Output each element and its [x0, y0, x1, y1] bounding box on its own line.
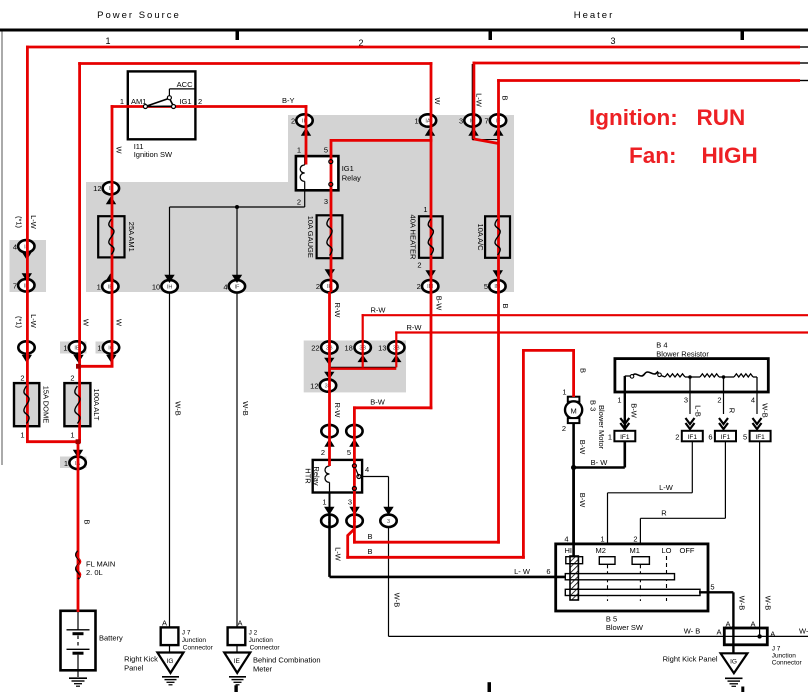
svg-text:Behind Combination: Behind Combination — [253, 656, 321, 665]
svg-text:HI: HI — [565, 546, 573, 555]
svg-text:25A AM1: 25A AM1 — [127, 222, 136, 252]
svg-text:B-W: B-W — [435, 296, 444, 312]
svg-text:B- W: B- W — [591, 458, 609, 467]
svg-text:1: 1 — [322, 498, 326, 507]
svg-text:L-W: L-W — [659, 483, 674, 492]
svg-text:Relay: Relay — [342, 174, 361, 183]
svg-text:W-B: W-B — [393, 593, 402, 607]
svg-text:Battery: Battery — [99, 634, 123, 643]
svg-text:5: 5 — [743, 432, 747, 441]
svg-text:2: 2 — [198, 97, 202, 106]
svg-text:40A HEATER: 40A HEATER — [409, 215, 418, 260]
svg-text:4: 4 — [223, 282, 227, 291]
svg-text:Connector: Connector — [183, 645, 214, 652]
svg-text:Ignition: RUN: Ignition: RUN — [589, 105, 745, 130]
svg-text:R: R — [661, 508, 667, 517]
svg-text:B-W: B-W — [370, 398, 386, 407]
svg-text:1: 1 — [617, 396, 621, 405]
svg-text:L-W: L-W — [334, 547, 343, 562]
svg-text:B: B — [367, 547, 372, 556]
svg-text:1: 1 — [608, 432, 612, 441]
svg-text:B-W: B-W — [578, 440, 587, 456]
svg-text:B: B — [501, 95, 510, 100]
svg-text:Blower SW: Blower SW — [606, 623, 644, 632]
svg-text:Ignition SW: Ignition SW — [134, 150, 173, 159]
svg-text:2: 2 — [675, 432, 679, 441]
svg-text:L- W: L- W — [514, 567, 531, 576]
svg-text:IG1: IG1 — [342, 164, 354, 173]
svg-text:A: A — [162, 619, 167, 628]
svg-text:W-B: W-B — [241, 401, 250, 415]
svg-text:Meter: Meter — [253, 665, 273, 674]
svg-text:L-W: L-W — [29, 314, 38, 329]
svg-text:10A A/C: 10A A/C — [476, 223, 485, 251]
svg-text:IG1: IG1 — [179, 97, 191, 106]
svg-text:Relay: Relay — [312, 466, 321, 485]
svg-text:2: 2 — [70, 374, 74, 383]
svg-text:B: B — [83, 519, 92, 524]
svg-text:IF: IF — [234, 284, 240, 290]
svg-text:10A GAUGE: 10A GAUGE — [306, 216, 315, 258]
svg-text:2: 2 — [717, 396, 721, 405]
svg-text:IG: IG — [730, 659, 737, 666]
svg-text:1: 1 — [70, 431, 74, 440]
svg-text:M: M — [570, 406, 576, 415]
svg-text:L-B: L-B — [694, 405, 703, 417]
svg-text:1: 1 — [600, 535, 604, 544]
svg-text:100A ALT: 100A ALT — [92, 389, 101, 421]
svg-text:IE: IE — [234, 658, 241, 665]
svg-text:5: 5 — [710, 583, 714, 592]
svg-text:3: 3 — [610, 36, 615, 46]
svg-text:B-W: B-W — [578, 493, 587, 509]
svg-text:1: 1 — [562, 388, 566, 397]
svg-text:Connector: Connector — [250, 645, 281, 652]
svg-text:M1: M1 — [630, 546, 640, 555]
svg-text:1: 1 — [415, 117, 419, 126]
svg-text:W: W — [115, 319, 124, 327]
svg-text:3: 3 — [684, 396, 688, 405]
svg-text:4: 4 — [751, 396, 755, 405]
svg-text:(*1): (*1) — [15, 316, 24, 329]
svg-text:22: 22 — [311, 344, 319, 353]
svg-text:W-B: W-B — [738, 596, 747, 610]
svg-text:ACC: ACC — [177, 80, 193, 89]
svg-text:6: 6 — [708, 432, 712, 441]
svg-text:2: 2 — [562, 424, 566, 433]
svg-text:R-W: R-W — [371, 306, 387, 315]
svg-text:Blower Motor: Blower Motor — [597, 405, 606, 450]
svg-text:W-B: W-B — [174, 401, 183, 415]
svg-text:Blower Resistor: Blower Resistor — [656, 350, 709, 359]
svg-text:B: B — [501, 303, 510, 308]
svg-text:2: 2 — [316, 282, 320, 291]
svg-text:4: 4 — [13, 242, 17, 251]
svg-text:M2: M2 — [596, 546, 606, 555]
svg-text:W-B: W-B — [761, 403, 770, 417]
svg-text:W: W — [433, 97, 442, 105]
svg-text:13: 13 — [378, 344, 386, 353]
svg-text:Heater: Heater — [574, 10, 615, 21]
svg-text:B: B — [367, 532, 372, 541]
svg-text:(*1): (*1) — [15, 216, 24, 229]
svg-text:3: 3 — [324, 197, 328, 206]
svg-text:1: 1 — [20, 431, 24, 440]
svg-text:B-Y: B-Y — [282, 96, 295, 105]
svg-text:IF1: IF1 — [721, 434, 731, 441]
svg-text:Right Kick: Right Kick — [124, 655, 158, 664]
svg-text:W- B: W- B — [684, 626, 701, 635]
svg-text:LO: LO — [662, 546, 672, 555]
svg-text:1: 1 — [97, 282, 101, 291]
svg-text:J 7: J 7 — [182, 630, 191, 637]
svg-text:B: B — [579, 368, 588, 373]
svg-text:A: A — [237, 619, 242, 628]
svg-text:B 3: B 3 — [589, 400, 598, 411]
svg-text:5: 5 — [347, 448, 351, 457]
svg-text:W: W — [82, 319, 91, 327]
svg-text:2: 2 — [417, 261, 421, 270]
svg-text:J 2: J 2 — [249, 630, 258, 637]
svg-text:4: 4 — [365, 465, 369, 474]
svg-text:R-W: R-W — [333, 303, 342, 319]
svg-text:1: 1 — [105, 36, 110, 46]
svg-text:Panel: Panel — [124, 664, 144, 673]
svg-text:IF1: IF1 — [755, 434, 765, 441]
svg-text:Connector: Connector — [772, 660, 803, 667]
svg-text:3: 3 — [459, 117, 463, 126]
svg-text:HTR: HTR — [304, 468, 313, 484]
svg-text:W: W — [115, 146, 124, 154]
svg-text:10: 10 — [152, 282, 160, 291]
svg-text:3: 3 — [387, 519, 390, 525]
svg-text:2: 2 — [20, 374, 24, 383]
svg-text:Junction: Junction — [182, 637, 207, 644]
svg-text:IF1: IF1 — [688, 434, 698, 441]
svg-text:15A DOME: 15A DOME — [42, 386, 51, 424]
svg-text:1: 1 — [63, 344, 67, 353]
svg-text:R-W: R-W — [407, 323, 423, 332]
svg-text:3: 3 — [348, 498, 352, 507]
svg-text:2: 2 — [291, 117, 295, 126]
svg-text:Right Kick Panel: Right Kick Panel — [663, 655, 718, 664]
svg-text:1: 1 — [297, 146, 301, 155]
svg-text:W-B: W-B — [799, 626, 808, 635]
svg-text:7: 7 — [13, 281, 17, 290]
svg-text:1: 1 — [120, 97, 124, 106]
svg-text:12: 12 — [93, 184, 101, 193]
svg-text:R-W: R-W — [333, 403, 342, 419]
svg-text:A: A — [770, 630, 775, 639]
svg-text:A: A — [716, 628, 721, 637]
svg-text:1: 1 — [97, 344, 101, 353]
svg-text:R: R — [728, 408, 737, 414]
svg-text:1: 1 — [423, 205, 427, 214]
svg-text:B-W: B-W — [630, 403, 639, 419]
svg-text:2. 0L: 2. 0L — [86, 568, 103, 577]
svg-text:IG: IG — [167, 658, 174, 665]
svg-text:OFF: OFF — [680, 546, 695, 555]
svg-text:Power Source: Power Source — [97, 10, 181, 21]
svg-text:7: 7 — [485, 117, 489, 126]
svg-text:6: 6 — [546, 567, 550, 576]
svg-text:2: 2 — [633, 535, 637, 544]
svg-text:2: 2 — [321, 448, 325, 457]
svg-text:Junction: Junction — [772, 653, 797, 660]
svg-text:12: 12 — [310, 382, 318, 391]
svg-text:J 7: J 7 — [772, 646, 781, 653]
svg-text:W-B: W-B — [764, 596, 773, 610]
svg-text:Junction: Junction — [249, 637, 274, 644]
svg-text:2: 2 — [417, 282, 421, 291]
svg-text:2: 2 — [297, 198, 301, 207]
svg-text:IH: IH — [167, 284, 173, 290]
svg-text:L-W: L-W — [475, 93, 484, 108]
svg-text:5: 5 — [324, 145, 328, 154]
svg-text:4: 4 — [564, 535, 568, 544]
svg-text:1: 1 — [64, 459, 68, 468]
svg-text:Fan: HIGH: Fan: HIGH — [629, 143, 758, 168]
svg-text:B 4: B 4 — [656, 341, 667, 350]
svg-text:18: 18 — [344, 344, 352, 353]
svg-text:IF1: IF1 — [620, 434, 630, 441]
svg-text:5: 5 — [484, 282, 488, 291]
svg-text:L-W: L-W — [29, 215, 38, 230]
